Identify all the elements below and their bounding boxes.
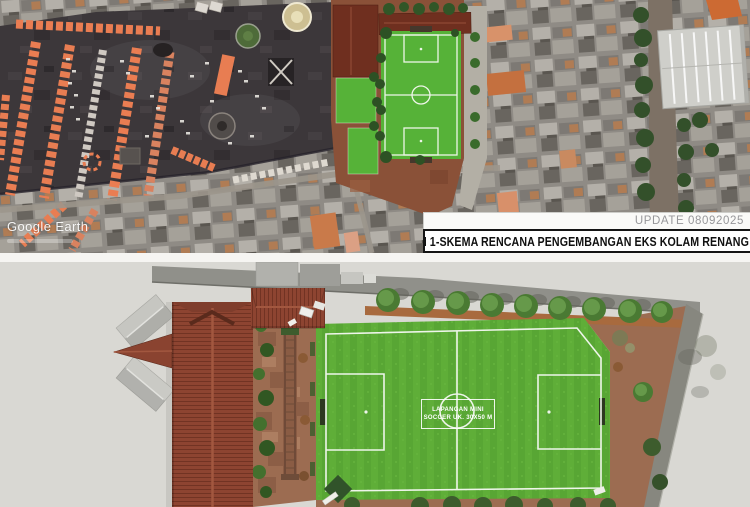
update-label: UPDATE 08092025 xyxy=(423,212,750,230)
page: Google Earth UPDATE 08092025 OPSI 1-SKEM… xyxy=(0,0,750,507)
plan-overlay xyxy=(331,0,487,216)
main-hall-roof xyxy=(172,302,253,507)
plan-title: OPSI 1-SKEMA RENCANA PENGEMBANGAN EKS KO… xyxy=(423,234,750,249)
green-patch-lower xyxy=(348,128,378,174)
site-plan-panel xyxy=(0,262,750,507)
green-patch-upper xyxy=(336,78,376,123)
imagery-attribution-smudge xyxy=(7,239,73,243)
x-frame-ride xyxy=(268,58,294,86)
field-label-line2: SOCCER UK. 30X50 M xyxy=(424,414,493,422)
goal-east xyxy=(599,398,605,425)
panel-divider xyxy=(0,253,750,262)
site-plan-drawing xyxy=(0,262,750,507)
goal-west xyxy=(320,399,326,425)
pavilion xyxy=(120,148,140,164)
title-bar: OPSI 1-SKEMA RENCANA PENGEMBANGAN EKS KO… xyxy=(423,229,750,253)
satellite-panel: Google Earth UPDATE 08092025 OPSI 1-SKEM… xyxy=(0,0,750,253)
field-center-label: LAPANGAN MINI SOCCER UK. 30X50 M xyxy=(421,399,495,429)
soccer-field-top xyxy=(381,26,461,163)
tree-clump xyxy=(153,43,173,57)
warehouse xyxy=(658,25,749,109)
garden-strip xyxy=(252,298,316,507)
google-earth-watermark: Google Earth xyxy=(7,219,88,234)
field-label-line1: LAPANGAN MINI xyxy=(432,406,484,414)
pergola-path xyxy=(281,328,299,480)
